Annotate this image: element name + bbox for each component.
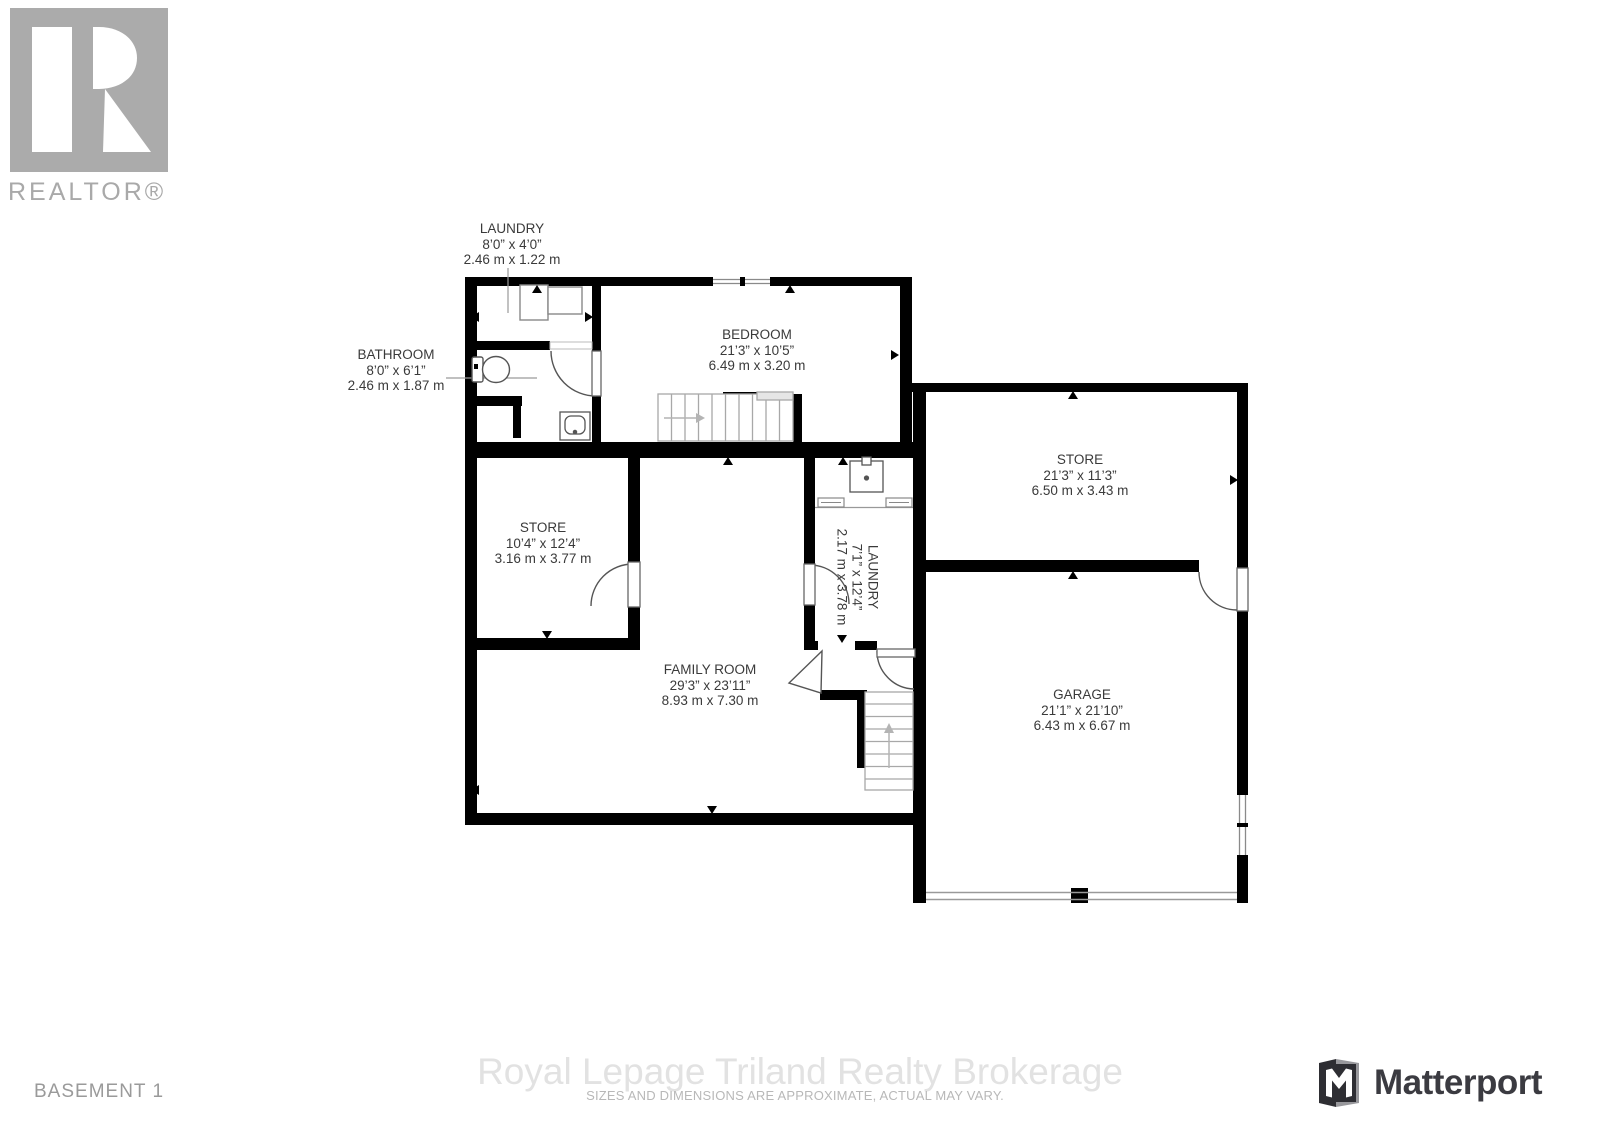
room-dims-metric: 3.16 m x 3.77 m xyxy=(495,551,592,567)
room-label-store-left: STORE 10’4” x 12’4” 3.16 m x 3.77 m xyxy=(495,520,592,567)
wall xyxy=(900,277,912,458)
wall xyxy=(820,690,867,700)
wall xyxy=(913,560,1199,572)
matterport-logo-text: Matterport xyxy=(1374,1063,1542,1103)
laundry-nook xyxy=(815,498,913,508)
room-dims-imperial: 29’3” x 23’11” xyxy=(662,678,759,694)
room-name: BATHROOM xyxy=(348,347,445,363)
disclaimer-text: SIZES AND DIMENSIONS ARE APPROXIMATE, AC… xyxy=(586,1088,1004,1103)
wall xyxy=(592,277,601,352)
room-dims-metric: 8.93 m x 7.30 m xyxy=(662,693,759,709)
stairs-lower xyxy=(865,692,913,790)
room-dims-imperial: 8’0” x 4’0” xyxy=(464,237,561,253)
room-name: LAUNDRY xyxy=(865,529,881,626)
door-family-room xyxy=(789,651,822,693)
room-dims-metric: 6.50 m x 3.43 m xyxy=(1032,483,1129,499)
wall xyxy=(465,638,640,650)
room-label-bathroom: BATHROOM 8’0” x 6’1” 2.46 m x 1.87 m xyxy=(348,347,445,394)
wall xyxy=(804,458,815,564)
door-garage xyxy=(1199,568,1248,611)
wall xyxy=(465,277,713,286)
toilet-icon xyxy=(472,357,510,383)
room-name: STORE xyxy=(1032,452,1129,468)
washer-dryer-icon xyxy=(520,285,582,320)
room-dims-metric: 6.43 m x 6.67 m xyxy=(1034,718,1131,734)
brokerage-watermark: Royal Lepage Triland Realty Brokerage xyxy=(477,1051,1123,1093)
matterport-m-icon xyxy=(1316,1058,1362,1108)
room-dims-metric: 6.49 m x 3.20 m xyxy=(709,358,806,374)
wall xyxy=(855,641,877,650)
room-dims-metric: 2.46 m x 1.87 m xyxy=(348,378,445,394)
room-dims-metric: 2.17 m x 3.78 m xyxy=(834,529,850,626)
stairs-lower-arrow-icon xyxy=(884,723,894,768)
wall xyxy=(900,383,1248,392)
room-label-garage: GARAGE 21’1” x 21’10” 6.43 m x 6.67 m xyxy=(1034,687,1131,734)
wall xyxy=(857,700,867,768)
wall xyxy=(804,641,818,650)
room-dims-imperial: 21’1” x 21’10” xyxy=(1034,703,1131,719)
room-name: LAUNDRY xyxy=(464,221,561,237)
wall xyxy=(1237,611,1248,795)
wall xyxy=(465,442,926,458)
bathroom-sink-icon xyxy=(560,412,590,440)
realtor-r-glyph xyxy=(10,8,168,172)
wall xyxy=(915,641,926,650)
wall xyxy=(1237,855,1248,903)
wall xyxy=(465,813,917,825)
wall xyxy=(465,341,550,350)
door-stair-landing xyxy=(877,649,915,689)
room-dims-imperial: 7’1” x 12’4” xyxy=(849,529,865,626)
wall xyxy=(770,277,912,286)
realtor-logo-icon xyxy=(10,8,168,177)
wall xyxy=(513,396,521,438)
floorplan-page: { "branding": { "realtor_logo_text": "RE… xyxy=(0,0,1600,1132)
room-name: GARAGE xyxy=(1034,687,1131,703)
room-label-store-right: STORE 21’3” x 11’3” 6.50 m x 3.43 m xyxy=(1032,452,1129,499)
window-bedroom xyxy=(713,277,770,286)
floorplan-fixtures xyxy=(0,0,1600,1132)
wall xyxy=(592,396,601,442)
stairs-upper-arrow-icon xyxy=(664,413,705,423)
matterport-logo: Matterport xyxy=(1316,1058,1542,1108)
room-dims-imperial: 8’0” x 6’1” xyxy=(348,363,445,379)
room-label-laundry-top: LAUNDRY 8’0” x 4’0” 2.46 m x 1.22 m xyxy=(464,221,561,268)
window-garage xyxy=(1237,795,1248,855)
room-label-family-room: FAMILY ROOM 29’3” x 23’11” 8.93 m x 7.30… xyxy=(662,662,759,709)
room-name: FAMILY ROOM xyxy=(662,662,759,678)
wall xyxy=(723,392,757,400)
room-dims-imperial: 21’3” x 11’3” xyxy=(1032,468,1129,484)
wall-garage-post xyxy=(1071,888,1088,903)
room-label-bedroom: BEDROOM 21’3” x 10’5” 6.49 m x 3.20 m xyxy=(709,327,806,374)
laundry-sink-icon xyxy=(850,457,883,492)
wall xyxy=(1237,383,1248,568)
room-name: BEDROOM xyxy=(709,327,806,343)
room-dims-imperial: 21’3” x 10’5” xyxy=(709,343,806,359)
wall xyxy=(465,277,477,825)
floor-name-label: BASEMENT 1 xyxy=(34,1081,164,1103)
room-label-laundry-mid: LAUNDRY 7’1” x 12’4” 2.17 m x 3.78 m xyxy=(834,529,881,626)
door-store-left xyxy=(591,562,640,607)
room-dims-imperial: 10’4” x 12’4” xyxy=(495,536,592,552)
room-name: STORE xyxy=(495,520,592,536)
wall xyxy=(628,458,640,562)
realtor-logo-text: REALTOR® xyxy=(8,178,166,207)
room-dims-metric: 2.46 m x 1.22 m xyxy=(464,252,561,268)
wall xyxy=(793,394,802,442)
